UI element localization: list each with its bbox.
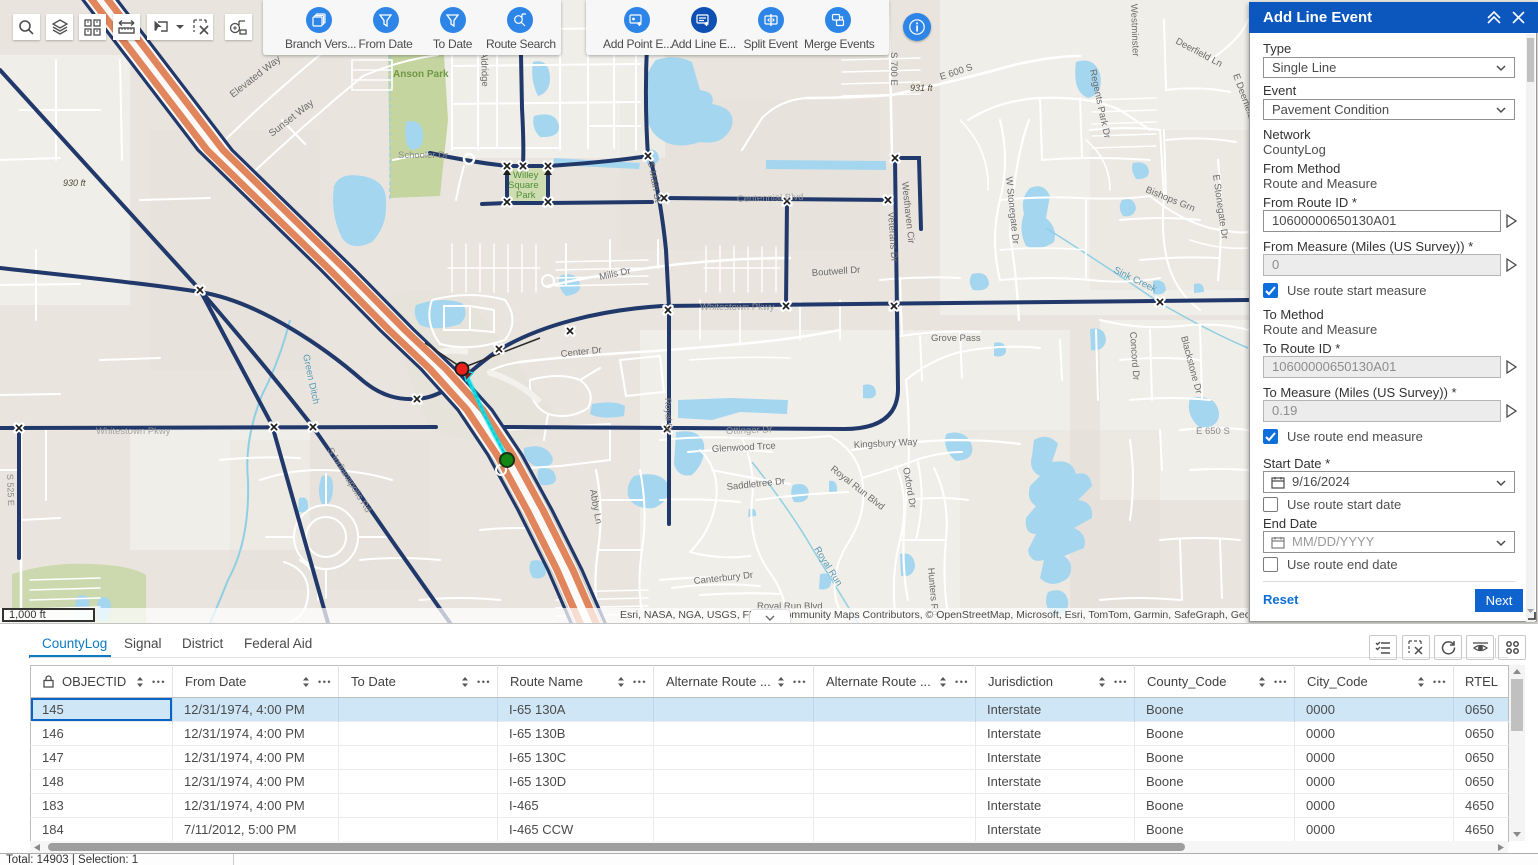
svg-text:Anson Park: Anson Park <box>393 69 449 80</box>
svg-text:Park: Park <box>516 190 536 201</box>
svg-text:Schooler Dr: Schooler Dr <box>398 150 448 161</box>
svg-text:Whitestown Pkwy: Whitestown Pkwy <box>700 302 775 313</box>
svg-text:931 ft: 931 ft <box>910 83 933 93</box>
svg-text:Ottinger Dr: Ottinger Dr <box>726 424 773 437</box>
svg-text:E 650 S: E 650 S <box>1196 426 1230 437</box>
svg-text:S 700 E: S 700 E <box>888 52 899 86</box>
svg-text:Centennial Blvd: Centennial Blvd <box>737 192 804 205</box>
svg-text:S 525 E: S 525 E <box>5 474 16 506</box>
svg-text:930 ft: 930 ft <box>63 178 86 188</box>
svg-text:Royal Dr: Royal Dr <box>663 398 674 433</box>
svg-text:Aldridge: Aldridge <box>478 52 490 87</box>
svg-text:Grove Pass: Grove Pass <box>931 333 981 344</box>
svg-text:Westminster: Westminster <box>1128 4 1141 57</box>
svg-text:Whitestown Pkwy: Whitestown Pkwy <box>96 426 171 437</box>
